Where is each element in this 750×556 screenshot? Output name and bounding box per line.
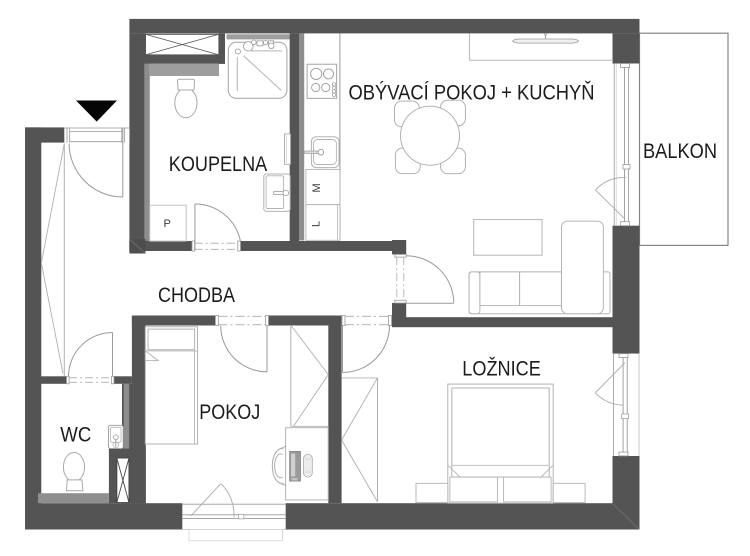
svg-text:M: M (311, 183, 323, 192)
svg-text:POKOJ: POKOJ (199, 401, 260, 424)
svg-text:CHODBA: CHODBA (158, 284, 235, 307)
svg-text:OBÝVACÍ POKOJ + KUCHYŇ: OBÝVACÍ POKOJ + KUCHYŇ (349, 81, 595, 104)
svg-text:BALKON: BALKON (643, 140, 717, 163)
svg-text:L: L (311, 221, 323, 227)
svg-text:KOUPELNA: KOUPELNA (169, 153, 267, 176)
svg-text:P: P (164, 218, 171, 230)
svg-text:WC: WC (60, 423, 91, 446)
svg-text:LOŽNICE: LOŽNICE (462, 358, 541, 381)
